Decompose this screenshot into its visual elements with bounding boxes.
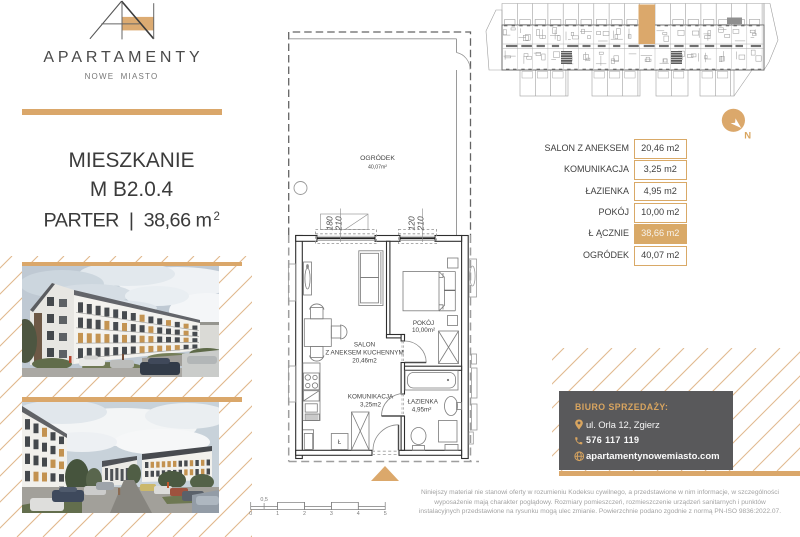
svg-text:3: 3 [330,511,333,517]
svg-text:0: 0 [249,511,252,517]
svg-text:5: 5 [384,511,387,517]
svg-text:0,5: 0,5 [260,497,268,503]
svg-text:10,00m²: 10,00m² [412,327,435,334]
svg-text:OGRÓDEK: OGRÓDEK [360,153,395,162]
svg-text:210: 210 [415,216,425,231]
svg-text:Z ANEKSEM KUCHENNYM: Z ANEKSEM KUCHENNYM [325,350,403,357]
svg-text:4: 4 [357,511,360,517]
svg-text:KOMUNIKACJA: KOMUNIKACJA [348,394,394,401]
svg-text:210: 210 [333,216,343,231]
svg-text:SALON: SALON [354,342,376,349]
svg-text:20,46m2: 20,46m2 [352,357,377,364]
svg-text:3,25m2: 3,25m2 [360,402,382,409]
svg-text:1: 1 [276,511,279,517]
svg-text:N: N [744,130,751,141]
svg-text:POKÓJ: POKÓJ [413,318,434,327]
svg-text:2: 2 [303,511,306,517]
svg-text:4,95m²: 4,95m² [412,407,432,414]
svg-text:Ł: Ł [338,440,342,446]
svg-text:40,07m²: 40,07m² [368,165,387,171]
svg-text:ŁAZIENKA: ŁAZIENKA [407,399,438,406]
